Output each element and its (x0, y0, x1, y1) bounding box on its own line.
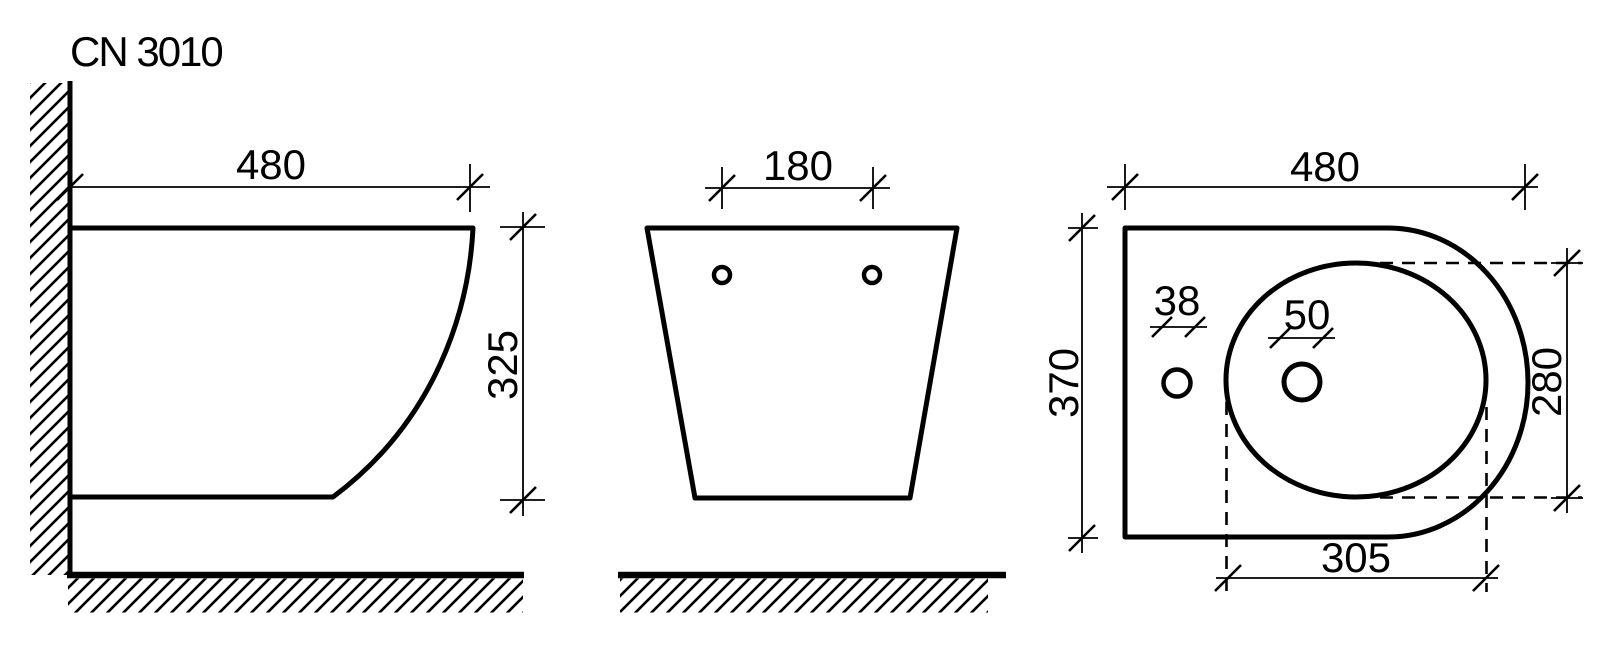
dim-bowl-width-label: 280 (1523, 347, 1570, 417)
bowl-rim (1226, 263, 1486, 497)
mounting-hole-left (714, 267, 730, 283)
dim-bowl-length: 305 (1215, 534, 1499, 591)
dim-faucet-hole-label: 38 (1154, 277, 1201, 324)
dim-hole-spacing-label: 180 (763, 142, 833, 189)
dim-plan-width-label: 370 (1040, 348, 1087, 418)
drain-hole (1284, 364, 1320, 400)
dim-side-height-label: 325 (479, 330, 526, 400)
side-view: 480 325 (30, 81, 545, 613)
floor-hatch-left (68, 579, 523, 613)
plan-view: 480 370 38 50 (1040, 143, 1583, 592)
dim-plan-length: 480 (1107, 143, 1538, 210)
mounting-hole-right (864, 267, 880, 283)
bidet-side-profile (70, 228, 473, 497)
dim-drain-hole-label: 50 (1284, 291, 1331, 338)
model-number: CN 3010 (70, 28, 222, 75)
dim-plan-width: 370 (1040, 213, 1098, 553)
dim-side-width-label: 480 (236, 141, 306, 188)
front-view: 180 (618, 142, 1006, 613)
bidet-front-outline (647, 228, 957, 498)
drawing-sheet: CN 3010 480 325 (0, 0, 1600, 651)
dim-side-width: 480 (57, 141, 490, 212)
dim-plan-length-label: 480 (1290, 143, 1360, 190)
floor-hatch-front (620, 579, 988, 613)
faucet-hole (1164, 370, 1191, 397)
dim-side-height: 325 (479, 212, 545, 516)
dim-bowl-width: 280 (1523, 248, 1583, 513)
technical-drawing: CN 3010 480 325 (0, 0, 1600, 651)
wall-hatch (30, 83, 68, 575)
dim-bowl-length-label: 305 (1321, 534, 1391, 581)
dim-hole-spacing: 180 (705, 142, 890, 209)
